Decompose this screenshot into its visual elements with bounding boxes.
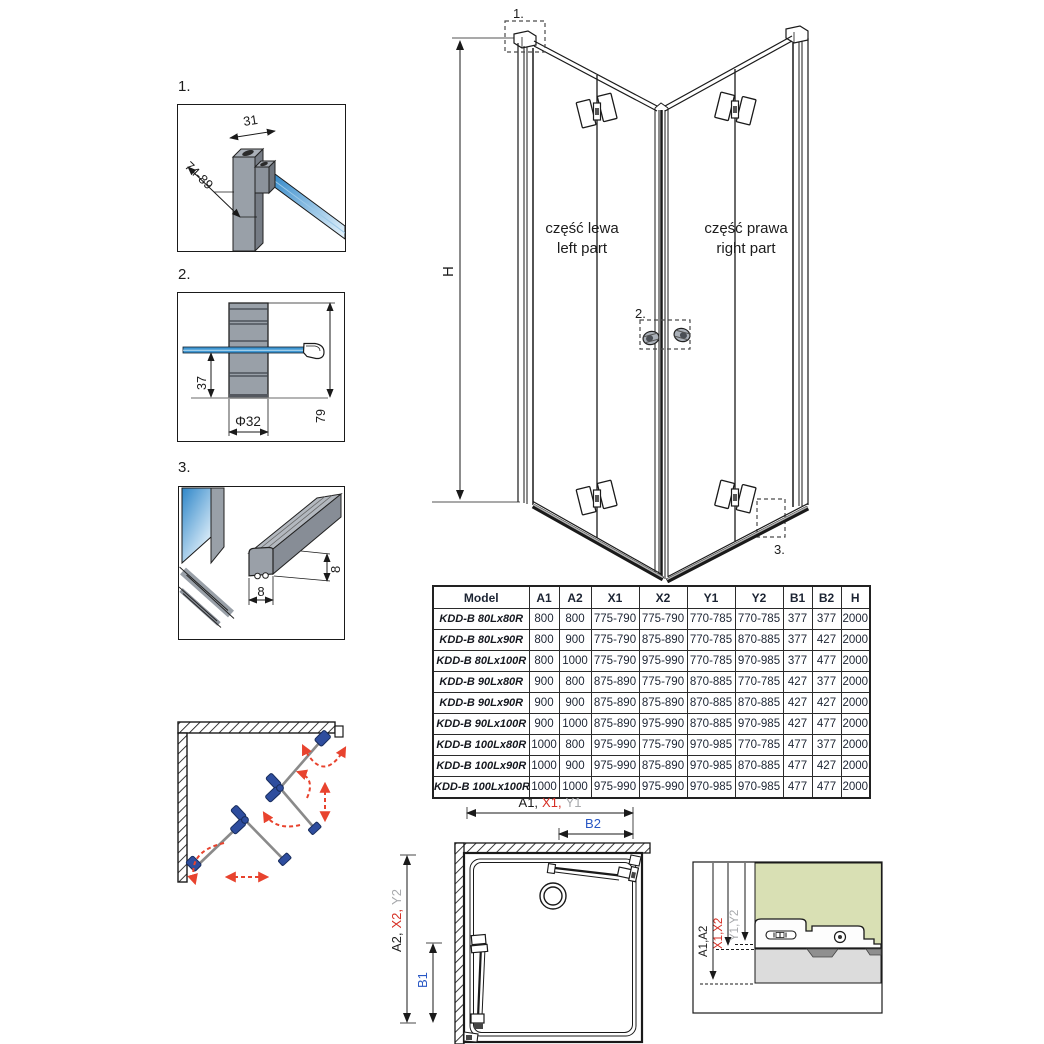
detail-1-wall-profile-drawing: 31 74-89 [178, 105, 345, 251]
table-row: KDD-B 90Lx80R900800875-890775-790870-885… [433, 672, 870, 693]
table-row: KDD-B 80Lx80R800800775-790775-790770-785… [433, 609, 870, 630]
value-cell: 900 [529, 714, 559, 735]
mounting-section-detail: A1,A2 X1,X2 Y1,Y2 [690, 845, 912, 1020]
column-header-a1: A1 [529, 586, 559, 609]
value-cell: 377 [783, 609, 812, 630]
value-cell: 875-890 [639, 756, 687, 777]
dimension-diameter-32: Φ32 [229, 399, 268, 436]
value-cell: 427 [812, 693, 841, 714]
right-wall-profile [786, 26, 808, 507]
value-cell: 800 [529, 609, 559, 630]
dim-x1x2: X1,X2 [713, 918, 725, 949]
value-cell: 775-790 [639, 735, 687, 756]
detail-1-box: 31 74-89 [177, 104, 346, 252]
wall-left [455, 843, 464, 1044]
value-cell: 800 [559, 672, 591, 693]
dimension-b1: B1 [415, 943, 442, 1022]
column-header-model: Model [433, 586, 529, 609]
dim-74-89-text: 74-89 [182, 158, 216, 192]
value-cell: 427 [812, 756, 841, 777]
dim-a1a2: A1,A2 [698, 926, 710, 957]
value-cell: 900 [529, 672, 559, 693]
dim-31-text: 31 [242, 112, 259, 129]
svg-text:A1,X1,Y1: A1,X1,Y1 [519, 795, 582, 810]
value-cell: 427 [783, 714, 812, 735]
callout-3-label: 3. [774, 542, 785, 557]
value-cell: 800 [529, 651, 559, 672]
technical-drawing-sheet: 1. [0, 0, 1044, 1044]
knob-left [642, 330, 661, 347]
value-cell: 775-790 [639, 672, 687, 693]
value-cell: 377 [812, 672, 841, 693]
detail-1-number: 1. [178, 78, 191, 95]
dimension-79: 79 [268, 303, 335, 423]
dimensions-table: ModelA1A2X1X2Y1Y2B1B2H KDD-B 80Lx80R8008… [432, 585, 871, 799]
dim-y1: Y1 [566, 795, 582, 810]
value-cell: 775-790 [591, 630, 639, 651]
value-cell: 1000 [529, 756, 559, 777]
value-cell: 770-785 [735, 735, 783, 756]
value-cell: 800 [559, 609, 591, 630]
dim-y2: Y2 [389, 889, 404, 905]
shower-tray [464, 853, 642, 1042]
dim-a2: A2, [389, 932, 404, 952]
tray-edge-section [755, 949, 881, 983]
left-wall-profile [514, 31, 536, 505]
wall-top [455, 843, 650, 853]
table-row: KDD-B 90Lx90R900900875-890875-890870-885… [433, 693, 870, 714]
column-header-y1: Y1 [687, 586, 735, 609]
dimension-b2: B2 [559, 816, 633, 840]
callout-2-label: 2. [635, 306, 646, 321]
main-enclosure-drawing: H [430, 5, 860, 583]
right-part-label-en: right part [716, 240, 776, 257]
value-cell: 900 [559, 630, 591, 651]
value-cell: 2000 [841, 756, 870, 777]
dim-8w-text: 8 [257, 584, 264, 599]
wall-bracket-top [335, 726, 343, 737]
table-row: KDD-B 100Lx80R1000800975-990775-790970-9… [433, 735, 870, 756]
detail-3-box: 8 8 [178, 486, 345, 640]
value-cell: 875-890 [591, 693, 639, 714]
value-cell: 970-985 [687, 756, 735, 777]
model-cell: KDD-B 90Lx80R [433, 672, 529, 693]
value-cell: 2000 [841, 630, 870, 651]
swing-arrows [193, 746, 345, 883]
value-cell: 477 [783, 756, 812, 777]
hinges [186, 730, 332, 872]
value-cell: 775-790 [591, 651, 639, 672]
value-cell: 427 [812, 630, 841, 651]
table-row: KDD-B 80Lx90R800900775-790875-890770-785… [433, 630, 870, 651]
value-cell: 2000 [841, 609, 870, 630]
value-cell: 427 [783, 693, 812, 714]
dim-b2: B2 [585, 816, 601, 831]
door-panels [198, 742, 320, 865]
value-cell: 770-785 [687, 651, 735, 672]
column-header-b1: B1 [783, 586, 812, 609]
value-cell: 970-985 [735, 714, 783, 735]
value-cell: 870-885 [687, 672, 735, 693]
dimension-37: 37 [195, 353, 211, 397]
value-cell: 2000 [841, 714, 870, 735]
detail-2-number: 2. [178, 266, 191, 283]
value-cell: 875-890 [591, 714, 639, 735]
value-cell: 775-790 [639, 609, 687, 630]
value-cell: 770-785 [687, 630, 735, 651]
column-header-x2: X2 [639, 586, 687, 609]
value-cell: 477 [812, 714, 841, 735]
value-cell: 2000 [841, 777, 870, 799]
model-cell: KDD-B 90Lx90R [433, 693, 529, 714]
dimension-31: 31 [230, 112, 275, 138]
detail-2-box: 37 Φ32 79 [177, 292, 345, 442]
dim-H-text: H [440, 266, 457, 277]
wall-left [178, 733, 187, 882]
model-cell: KDD-B 80Lx90R [433, 630, 529, 651]
value-cell: 870-885 [735, 756, 783, 777]
value-cell: 770-785 [735, 672, 783, 693]
value-cell: 2000 [841, 672, 870, 693]
value-cell: 1000 [559, 714, 591, 735]
threshold-rails [533, 502, 808, 582]
value-cell: 2000 [841, 651, 870, 672]
value-cell: 800 [559, 735, 591, 756]
value-cell: 2000 [841, 735, 870, 756]
dimension-8-width: 8 [249, 576, 273, 605]
value-cell: 870-885 [735, 630, 783, 651]
column-header-y2: Y2 [735, 586, 783, 609]
model-cell: KDD-B 100Lx90R [433, 756, 529, 777]
plan-view-drawing: A1,X1,Y1 B2 [388, 792, 688, 1044]
value-cell: 970-985 [687, 735, 735, 756]
dimension-top-a1x1y1: A1,X1,Y1 [467, 795, 633, 839]
dim-x1: X1, [542, 795, 562, 810]
model-cell: KDD-B 90Lx100R [433, 714, 529, 735]
value-cell: 975-990 [639, 714, 687, 735]
value-cell: 377 [783, 651, 812, 672]
column-header-h: H [841, 586, 870, 609]
value-cell: 770-785 [735, 609, 783, 630]
svg-text:A2,X2,Y2: A2,X2,Y2 [389, 889, 404, 952]
value-cell: 870-885 [687, 693, 735, 714]
knob-right [673, 327, 692, 344]
value-cell: 377 [812, 609, 841, 630]
model-cell: KDD-B 100Lx80R [433, 735, 529, 756]
value-cell: 427 [783, 672, 812, 693]
value-cell: 970-985 [687, 777, 735, 799]
table-row: KDD-B 100Lx90R1000900975-990875-890970-9… [433, 756, 870, 777]
value-cell: 975-990 [639, 651, 687, 672]
left-part-label-pl: część lewa [545, 220, 619, 237]
value-cell: 770-785 [687, 609, 735, 630]
glass-pane [269, 174, 345, 239]
value-cell: 900 [529, 693, 559, 714]
value-cell: 870-885 [735, 693, 783, 714]
dimension-H: H [432, 38, 520, 502]
value-cell: 875-890 [639, 630, 687, 651]
wall-profile-3d [233, 149, 275, 251]
dim-79-text: 79 [314, 409, 328, 423]
value-cell: 900 [559, 756, 591, 777]
value-cell: 477 [812, 777, 841, 799]
detail-2-knob-drawing: 37 Φ32 79 [178, 293, 344, 441]
dimensions-table-head-row: ModelA1A2X1X2Y1Y2B1B2H [433, 586, 870, 609]
value-cell: 2000 [841, 693, 870, 714]
callout-1-label: 1. [513, 6, 524, 21]
value-cell: 477 [783, 777, 812, 799]
value-cell: 377 [812, 735, 841, 756]
dimensions-table-body: KDD-B 80Lx80R800800775-790775-790770-785… [433, 609, 870, 799]
glass-edge [183, 347, 304, 353]
detail-3-number: 3. [178, 459, 191, 476]
model-cell: KDD-B 80Lx100R [433, 651, 529, 672]
column-header-b2: B2 [812, 586, 841, 609]
dim-37-text: 37 [195, 376, 209, 390]
value-cell: 875-890 [639, 693, 687, 714]
table-row: KDD-B 80Lx100R8001000775-790975-990770-7… [433, 651, 870, 672]
folding-doors-plan-diagram [170, 712, 375, 942]
detail-3-threshold-drawing: 8 8 [179, 487, 344, 639]
column-header-a2: A2 [559, 586, 591, 609]
value-cell: 800 [529, 630, 559, 651]
value-cell: 377 [783, 630, 812, 651]
value-cell: 970-985 [735, 777, 783, 799]
value-cell: 1000 [529, 735, 559, 756]
value-cell: 975-990 [591, 735, 639, 756]
dim-phi32-text: Φ32 [235, 414, 261, 429]
dimension-left-a2x2y2: A2,X2,Y2 [389, 855, 416, 1023]
value-cell: 775-790 [591, 609, 639, 630]
value-cell: 477 [812, 651, 841, 672]
value-cell: 1000 [559, 651, 591, 672]
table-row: KDD-B 90Lx100R9001000875-890975-990870-8… [433, 714, 870, 735]
value-cell: 970-985 [735, 651, 783, 672]
value-cell: 900 [559, 693, 591, 714]
dim-y1y2: Y1,Y2 [729, 910, 741, 941]
door-corner-glass [179, 488, 234, 628]
right-part-label-pl: część prawa [704, 220, 788, 237]
model-cell: KDD-B 80Lx80R [433, 609, 529, 630]
dim-b1: B1 [415, 972, 430, 988]
dim-x2: X2, [389, 909, 404, 929]
value-cell: 975-990 [591, 756, 639, 777]
column-header-x1: X1 [591, 586, 639, 609]
dim-8h-text: 8 [328, 566, 343, 573]
left-part-label-en: left part [557, 240, 608, 257]
value-cell: 477 [783, 735, 812, 756]
dim-a1: A1, [519, 795, 539, 810]
value-cell: 870-885 [687, 714, 735, 735]
wall-top [178, 722, 335, 733]
value-cell: 875-890 [591, 672, 639, 693]
